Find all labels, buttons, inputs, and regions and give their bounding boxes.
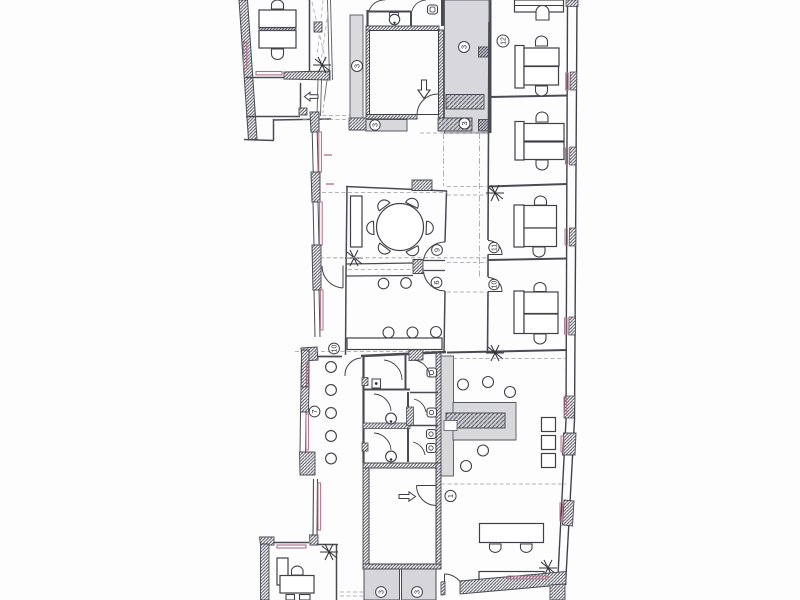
svg-text:7: 7 <box>310 409 319 413</box>
svg-text:3: 3 <box>413 590 422 594</box>
svg-text:10: 10 <box>331 345 338 353</box>
svg-text:6: 6 <box>432 280 441 284</box>
svg-text:3: 3 <box>371 123 380 127</box>
svg-text:3: 3 <box>377 590 386 594</box>
svg-text:3: 3 <box>460 121 469 125</box>
svg-text:3: 3 <box>460 45 469 49</box>
svg-text:10: 10 <box>491 281 498 289</box>
svg-text:9: 9 <box>433 248 442 252</box>
svg-text:11: 11 <box>491 244 498 251</box>
svg-text:1: 1 <box>446 494 455 498</box>
svg-text:12: 12 <box>500 37 507 45</box>
svg-text:3: 3 <box>353 64 362 68</box>
